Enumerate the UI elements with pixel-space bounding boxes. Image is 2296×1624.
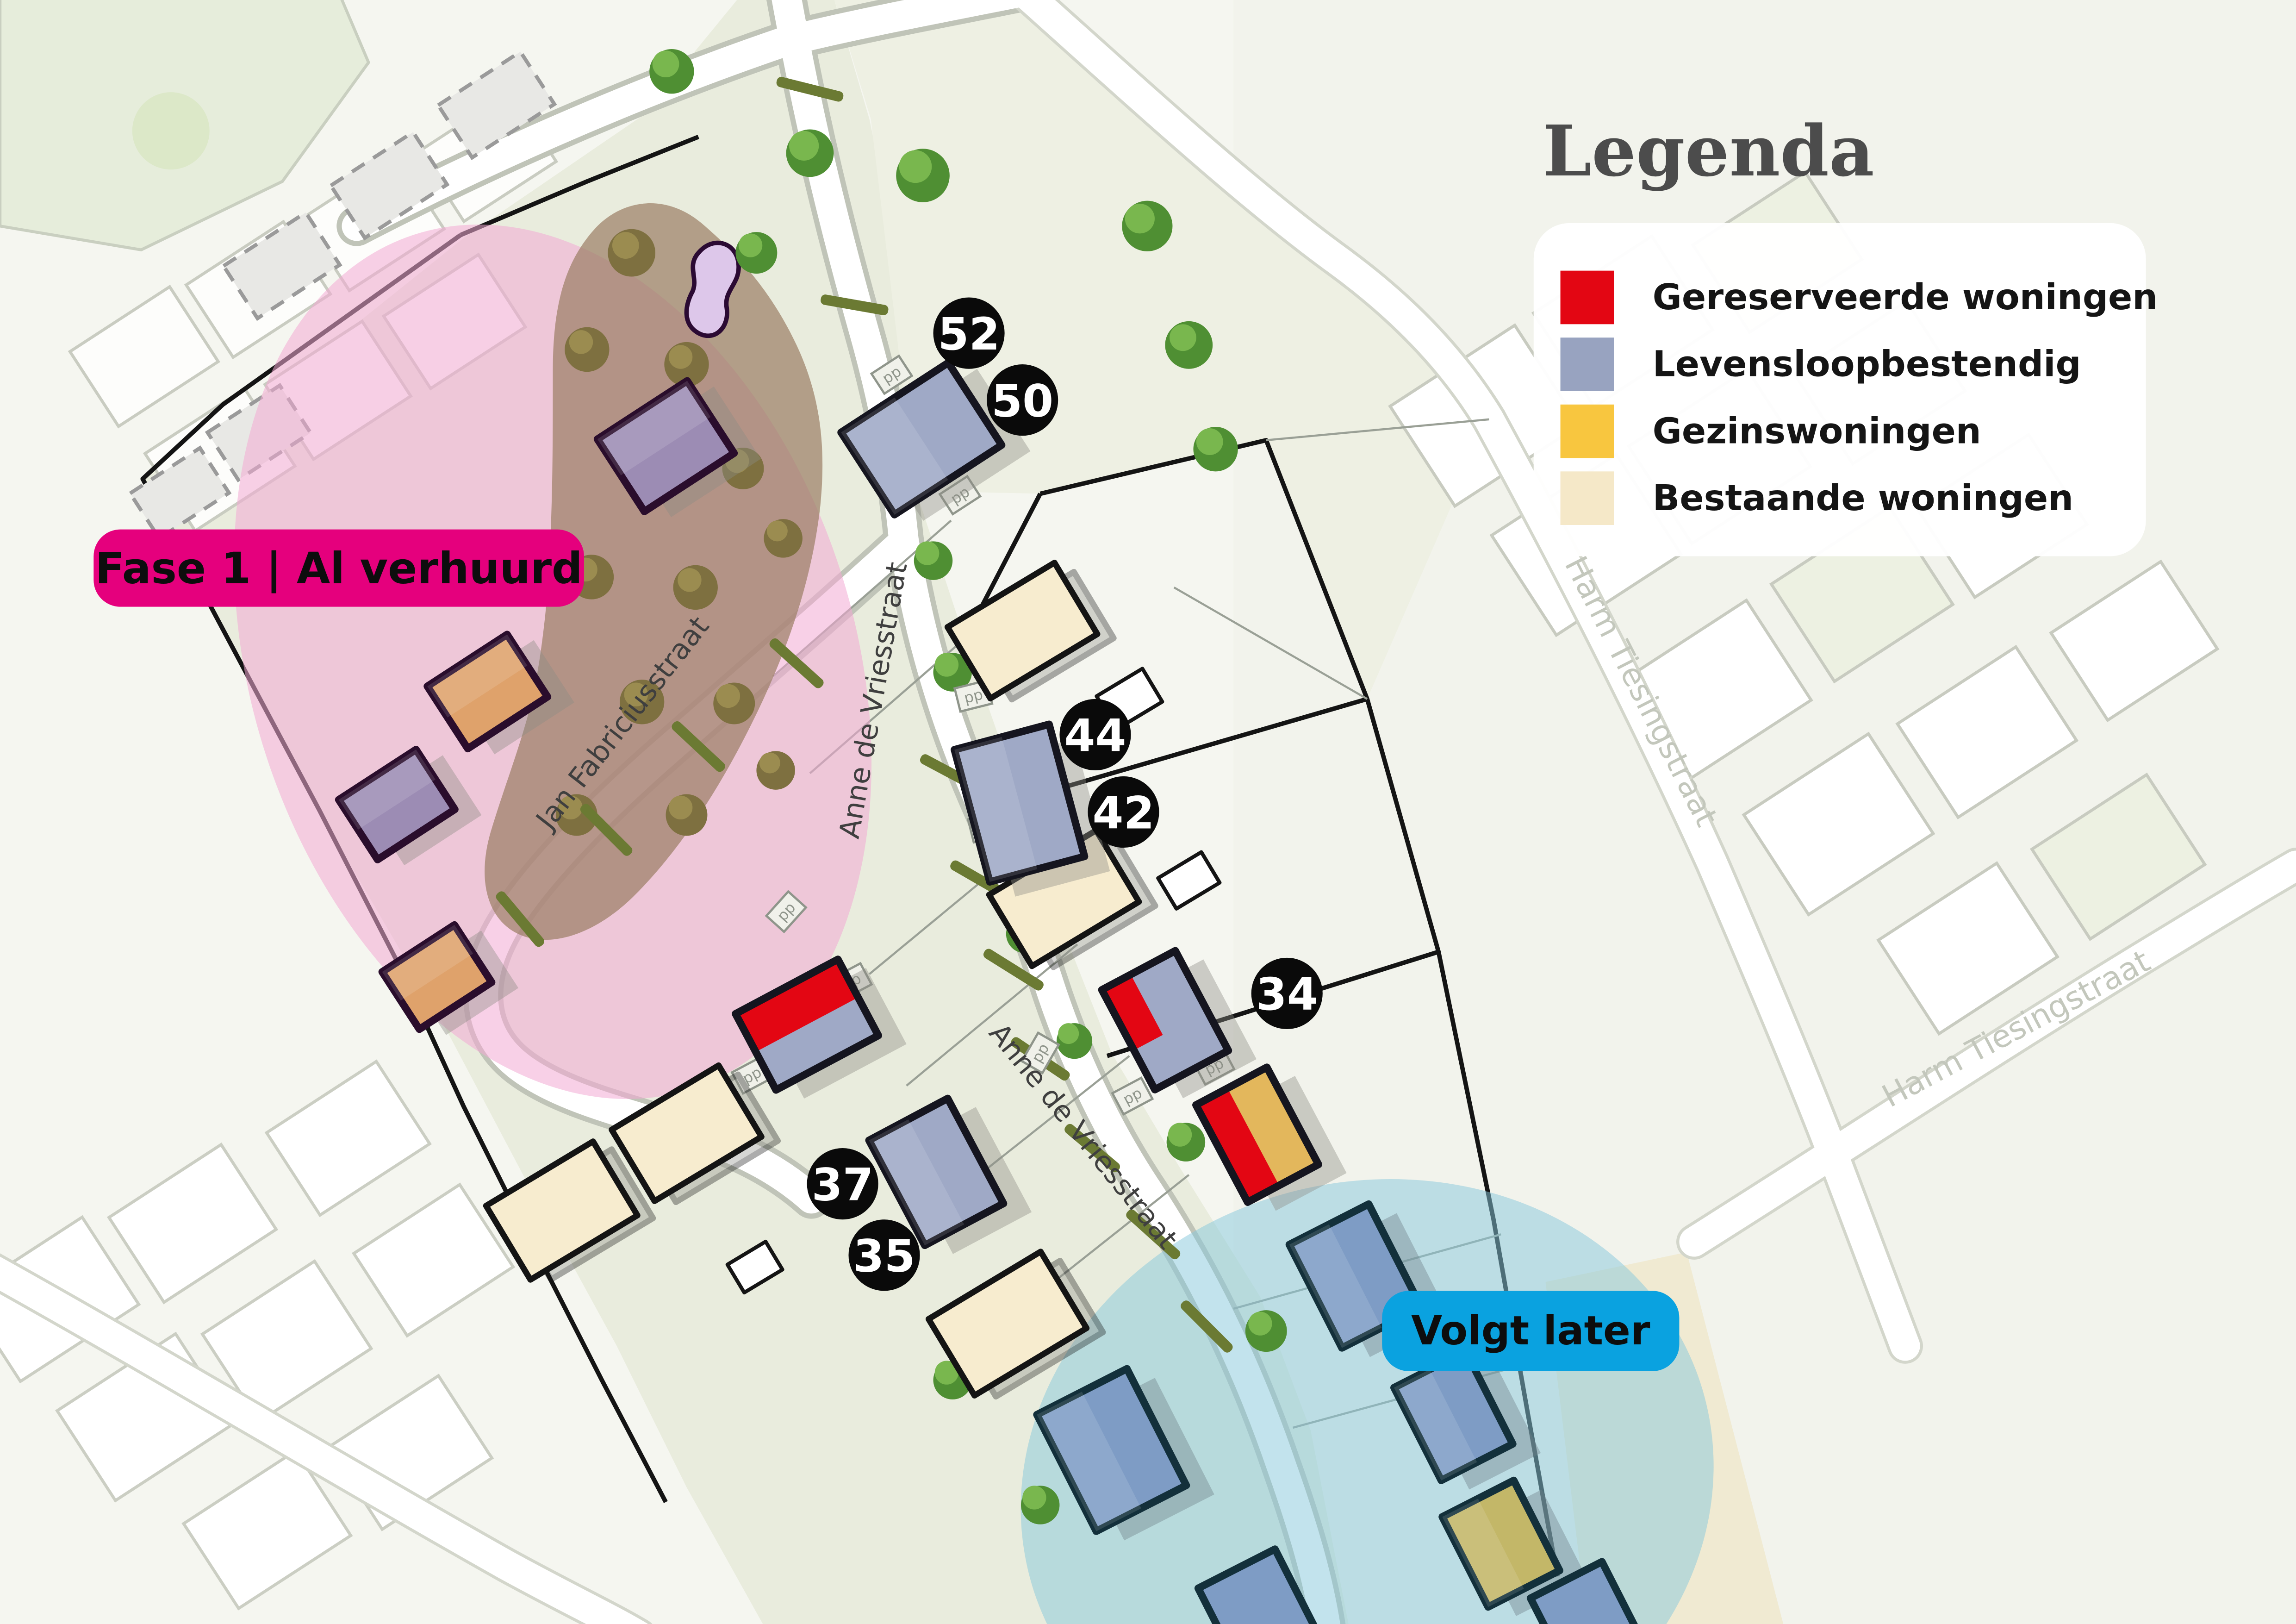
- plot-marker-37[interactable]: 37: [807, 1148, 878, 1219]
- plot-number: 35: [853, 1230, 915, 1282]
- legend-title: Legenda: [1543, 110, 1874, 192]
- legend-label-bestaande: Bestaande woningen: [1653, 477, 2073, 519]
- plot-marker-42[interactable]: 42: [1088, 776, 1159, 848]
- site-plan-map: pp pp pp pp pp pp pp pp pp pp: [0, 0, 2296, 1624]
- legend-swatch-gezinswoningen: [1561, 405, 1614, 458]
- plot-number: 37: [812, 1159, 874, 1211]
- legend-swatch-gereserveerd: [1561, 271, 1614, 325]
- volgt-later-badge-label: Volgt later: [1411, 1308, 1650, 1354]
- plot-marker-34[interactable]: 34: [1251, 958, 1323, 1029]
- legend-label-gereserveerd: Gereserveerde woningen: [1653, 276, 2158, 318]
- plot-number: 34: [1256, 968, 1318, 1020]
- plot-number: 52: [938, 308, 1000, 360]
- fase1-badge-label: Fase 1 | Al verhuurd: [95, 543, 583, 593]
- plot-marker-50[interactable]: 50: [987, 364, 1058, 436]
- plot-number: 42: [1092, 787, 1154, 839]
- fase1-badge: Fase 1 | Al verhuurd: [93, 530, 584, 607]
- legend-label-gezinswoningen: Gezinswoningen: [1653, 410, 1981, 452]
- legend-swatch-levensloopbestendig: [1561, 337, 1614, 391]
- plot-marker-52[interactable]: 52: [933, 297, 1005, 369]
- volgt-later-badge: Volgt later: [1382, 1291, 1679, 1371]
- plot-number: 50: [991, 375, 1053, 427]
- plot-marker-44[interactable]: 44: [1059, 699, 1131, 770]
- legend-swatch-bestaande: [1561, 471, 1614, 525]
- plot-marker-35[interactable]: 35: [848, 1219, 920, 1291]
- legend-label-levensloopbestendig: Levensloopbestendig: [1653, 344, 2081, 385]
- plot-number: 44: [1064, 710, 1126, 762]
